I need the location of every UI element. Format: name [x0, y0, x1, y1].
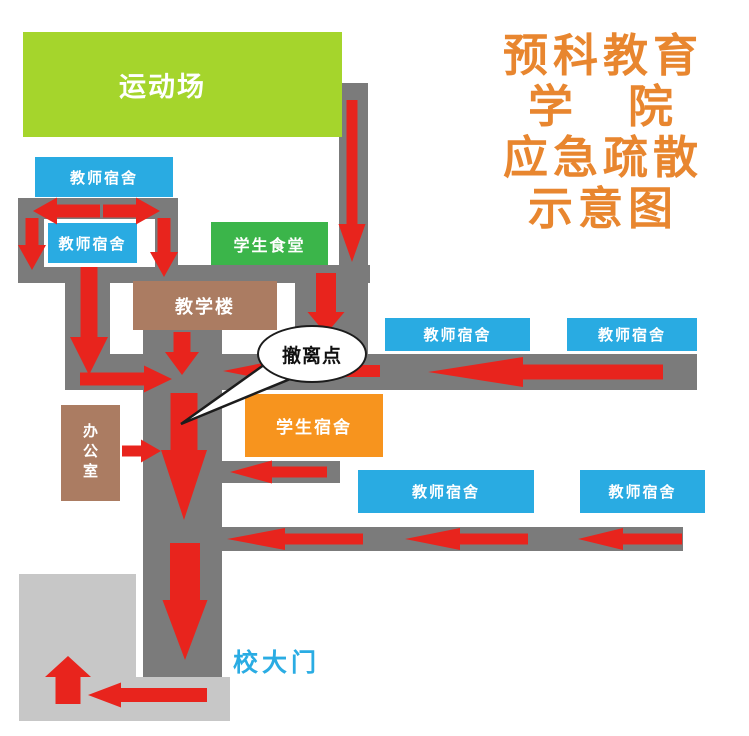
student-dorm-label: 学生宿舍 — [276, 413, 352, 438]
path-stub-right — [222, 461, 340, 483]
school-gate-label: 校大门 — [233, 643, 320, 679]
sports-field: 运动场 — [23, 32, 342, 137]
teaching-building: 教学楼 — [133, 281, 277, 330]
map-title-line-1: 预科教育 — [497, 30, 709, 81]
map-title: 预科教育 学 院 应急疏散 示意图 — [497, 30, 709, 234]
evacuation-point-callout: 撤离点 — [257, 325, 367, 383]
sports-field-label: 运动场 — [119, 65, 206, 104]
student-canteen-label: 学生食堂 — [233, 232, 305, 256]
teacher-dorm-2: 教师宿舍 — [48, 223, 137, 263]
path-right-upper — [339, 83, 368, 265]
teacher-dorm-5-label: 教师宿舍 — [412, 481, 480, 502]
teacher-dorm-4: 教师宿舍 — [567, 318, 697, 351]
evacuation-map: 运动场教师宿舍教师宿舍学生食堂教学楼办公室学生宿舍教师宿舍教师宿舍教师宿舍教师宿… — [0, 0, 749, 736]
path-main-vertical — [143, 330, 222, 677]
teacher-dorm-3-label: 教师宿舍 — [423, 324, 491, 345]
teacher-dorm-6: 教师宿舍 — [580, 470, 705, 513]
evacuation-point-label: 撤离点 — [282, 341, 342, 368]
teacher-dorm-2-label: 教师宿舍 — [58, 233, 126, 254]
map-title-line-2: 学 院 — [497, 81, 709, 132]
office-label: 办公室 — [80, 423, 101, 483]
teacher-dorm-4-label: 教师宿舍 — [598, 324, 666, 345]
teacher-dorm-5: 教师宿舍 — [358, 470, 534, 513]
teacher-dorm-3: 教师宿舍 — [385, 318, 530, 351]
teacher-dorm-1-label: 教师宿舍 — [70, 167, 138, 188]
open-area-corridor — [136, 677, 230, 721]
path-corridor-lower — [222, 527, 683, 551]
teacher-dorm-6-label: 教师宿舍 — [608, 481, 676, 502]
open-area-square — [19, 574, 136, 721]
teaching-building-label: 教学楼 — [175, 293, 235, 319]
teacher-dorm-1: 教师宿舍 — [35, 157, 173, 197]
student-dorm: 学生宿舍 — [245, 394, 383, 457]
student-canteen: 学生食堂 — [211, 222, 328, 265]
map-title-line-3: 应急疏散 — [497, 132, 709, 183]
map-title-line-4: 示意图 — [497, 183, 709, 234]
office: 办公室 — [61, 405, 120, 501]
